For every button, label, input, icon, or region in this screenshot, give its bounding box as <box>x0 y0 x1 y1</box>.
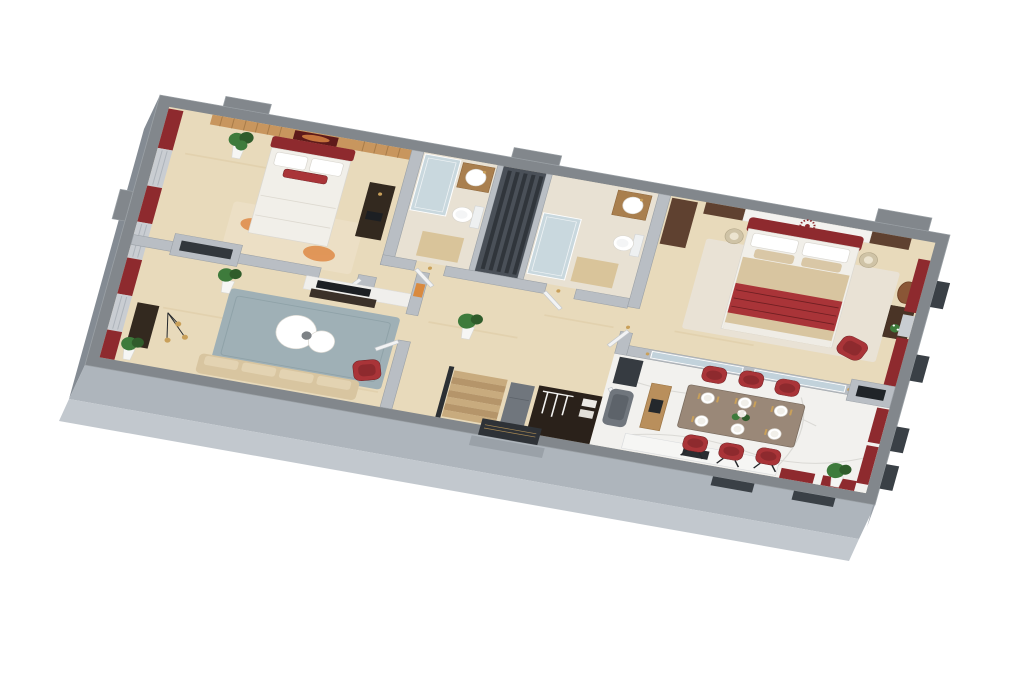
accent-armchair <box>352 359 381 381</box>
floorplan-svg <box>0 0 1024 683</box>
vanity-sink <box>457 163 495 193</box>
apartment-floorplan-render <box>0 0 1024 683</box>
